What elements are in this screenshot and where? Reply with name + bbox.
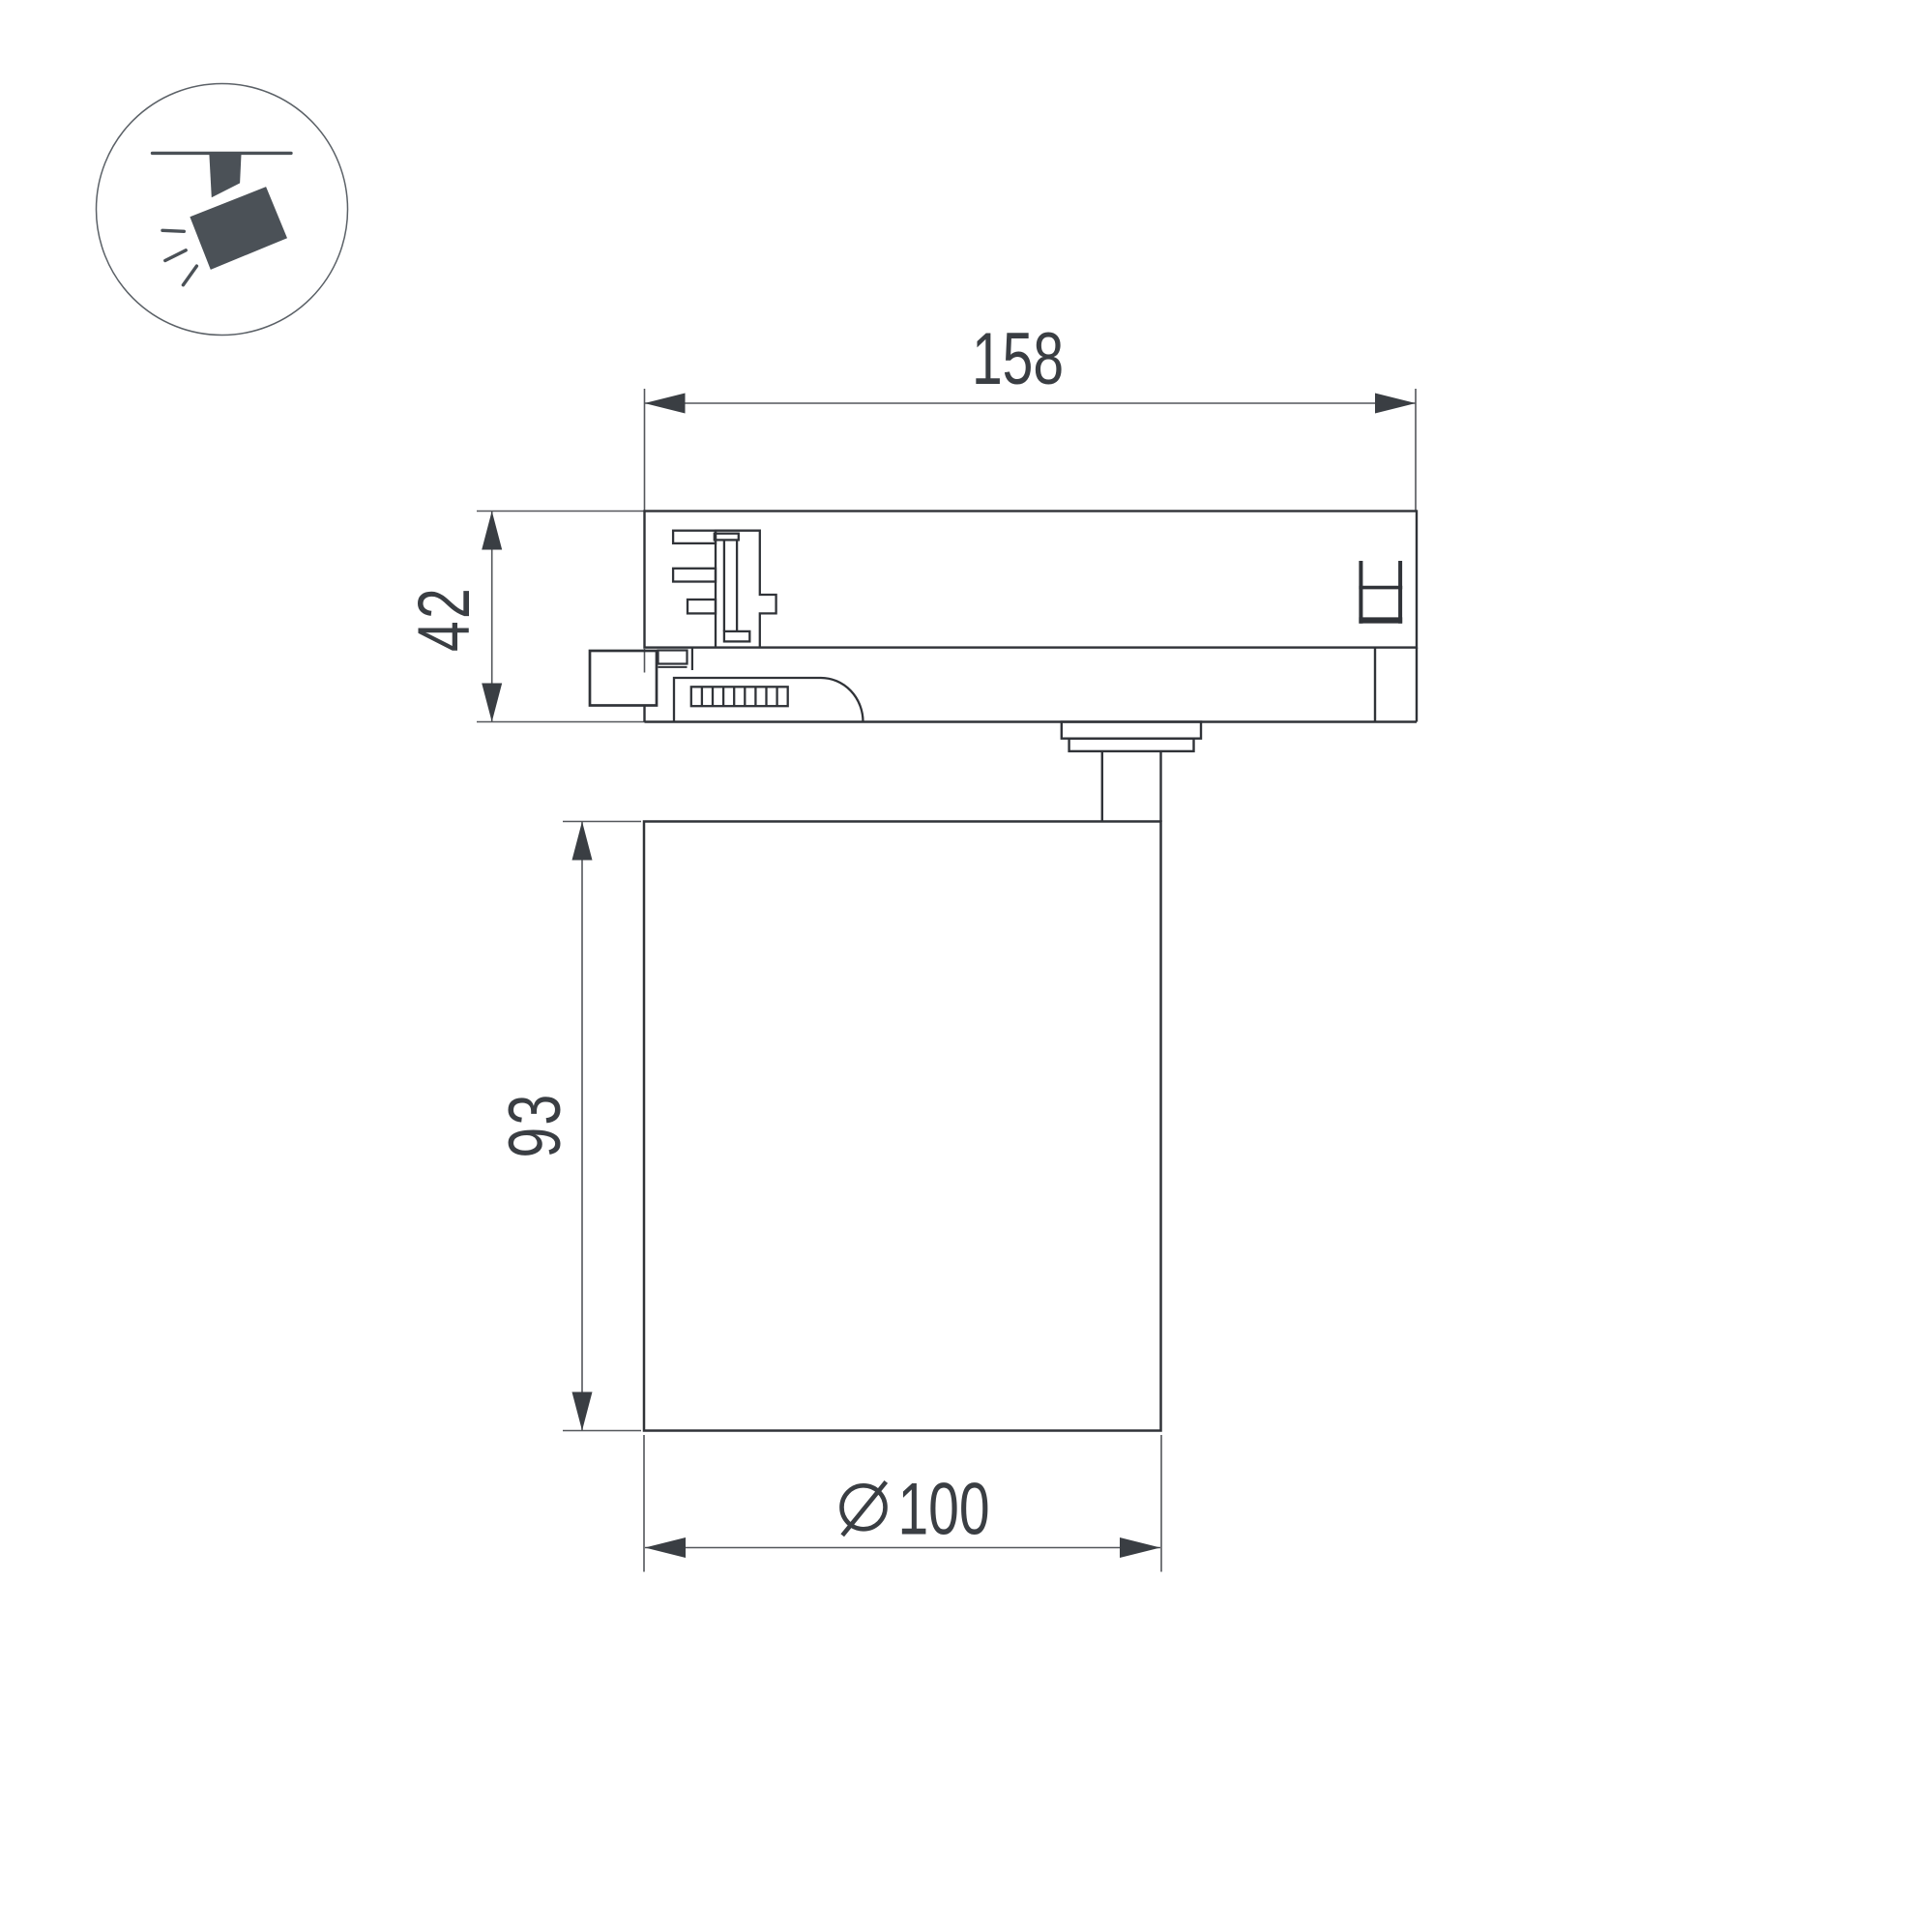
svg-text:158: 158 [972,318,1064,400]
svg-text:100: 100 [897,1469,989,1551]
svg-text:42: 42 [403,586,485,652]
svg-text:93: 93 [494,1093,576,1158]
